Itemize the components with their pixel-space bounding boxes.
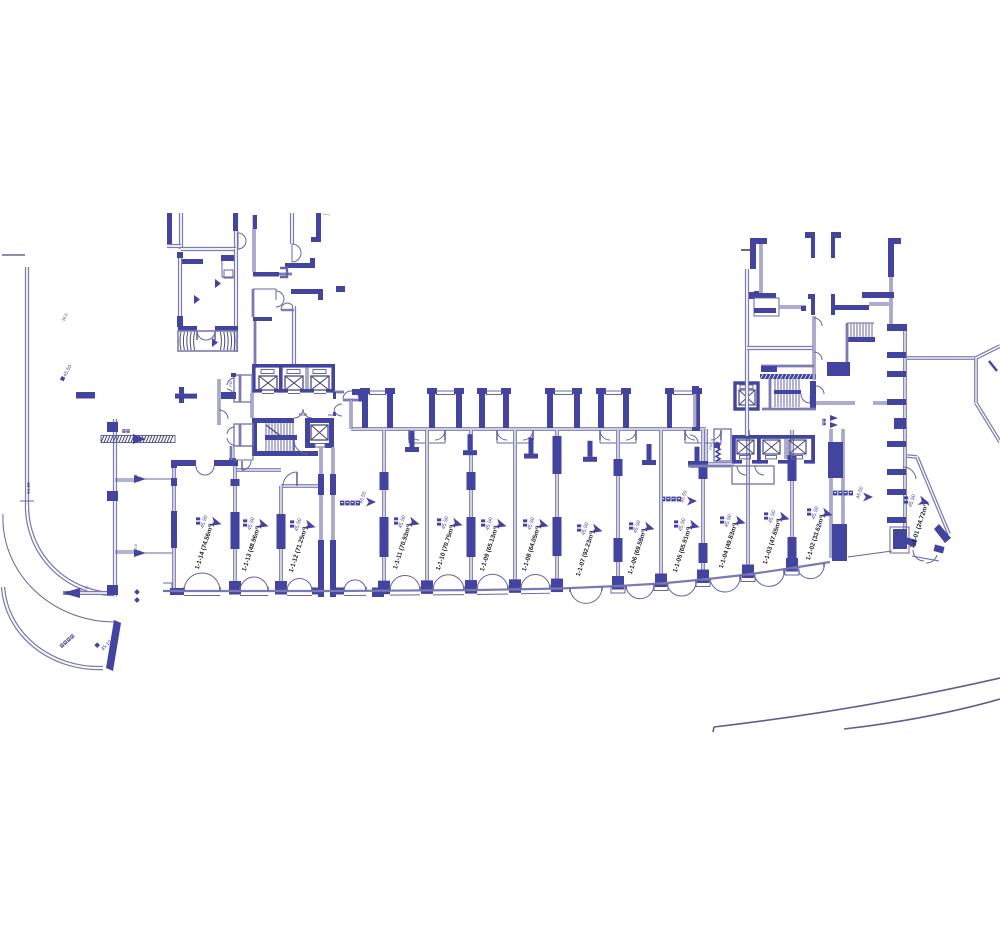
svg-text:51.58: 51.58 (26, 482, 31, 494)
svg-text:FM2: FM2 (299, 412, 308, 417)
svg-text:FM: FM (229, 381, 233, 386)
svg-text:FM2: FM2 (809, 395, 813, 403)
svg-text:FM: FM (709, 444, 713, 449)
